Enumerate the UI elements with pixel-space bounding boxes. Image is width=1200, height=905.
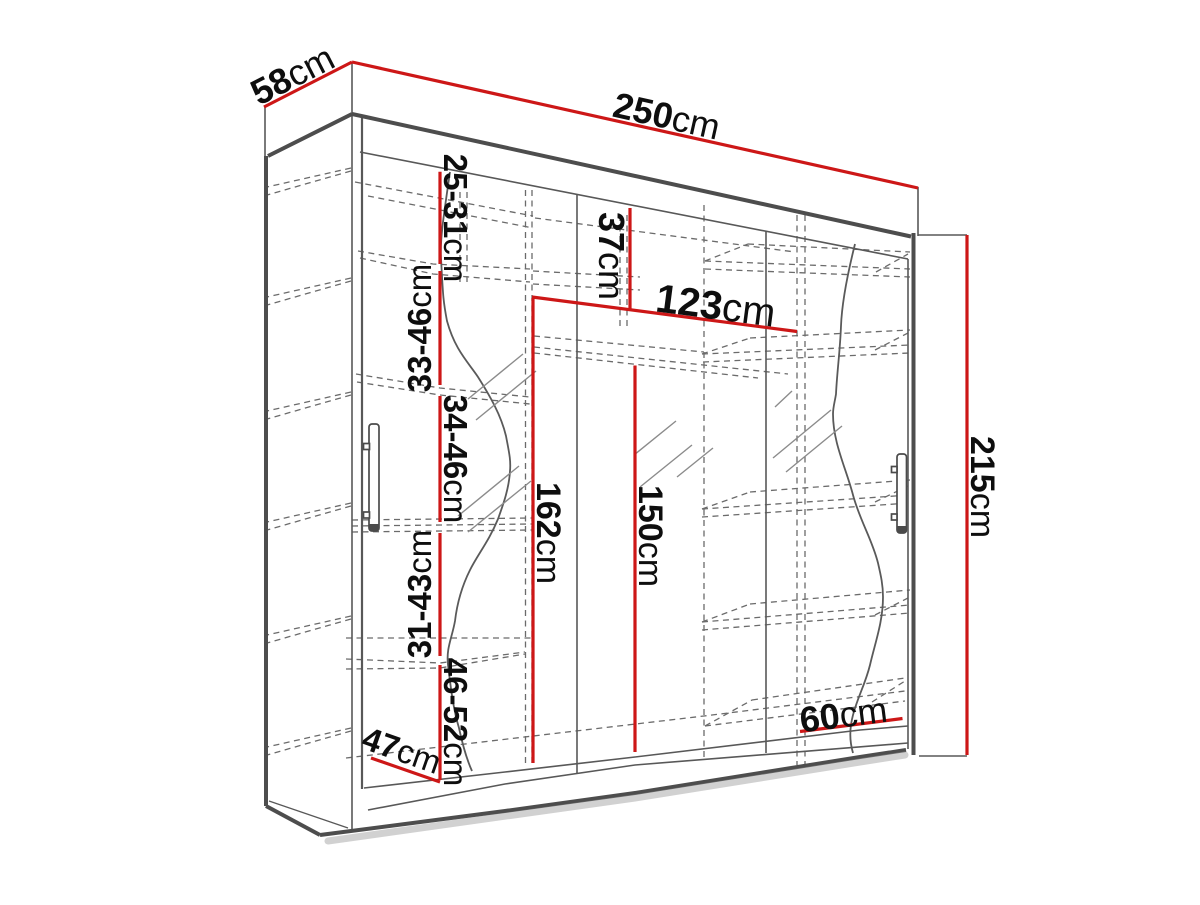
svg-text:31-43cm: 31-43cm	[401, 530, 438, 658]
svg-text:46-52cm: 46-52cm	[437, 658, 474, 786]
svg-text:215cm: 215cm	[963, 436, 1001, 538]
svg-text:25-31cm: 25-31cm	[437, 154, 474, 282]
svg-text:33-46cm: 33-46cm	[401, 264, 438, 392]
svg-text:150cm: 150cm	[631, 485, 669, 587]
svg-text:34-46cm: 34-46cm	[437, 395, 474, 523]
svg-text:37cm: 37cm	[591, 212, 632, 300]
svg-text:162cm: 162cm	[529, 482, 567, 584]
